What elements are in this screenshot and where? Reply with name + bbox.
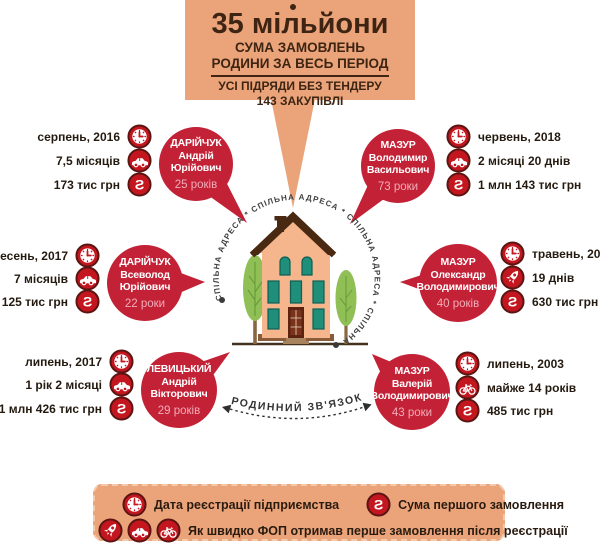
stat-speed: майже 14 років xyxy=(455,375,576,400)
person-surname: МАЗУР xyxy=(440,256,475,269)
stat-first-order-sum: 485 тис грн xyxy=(455,398,553,423)
person-age: 25 років xyxy=(175,179,217,191)
money-icon xyxy=(127,172,152,197)
person-age: 29 років xyxy=(158,405,200,417)
subtitle-line1: СУМА ЗАМОВЛЕНЬ xyxy=(185,40,415,56)
legend: Дата реєстрації підприємства Сума першог… xyxy=(93,484,505,541)
clock-icon xyxy=(75,243,100,268)
person-name: Андрій xyxy=(178,150,213,163)
person-age: 40 років xyxy=(437,298,479,310)
person-patronymic: Володимирович xyxy=(416,281,499,294)
legend-item-registration: Дата реєстрації підприємства Сума першог… xyxy=(122,492,564,517)
person-patronymic: Васильович xyxy=(367,164,429,177)
person-bubble: ДАРІЙЧУК Андрій Юрійович 25 років xyxy=(159,127,233,201)
clock-icon xyxy=(446,124,471,149)
stat-speed: 7 місяців xyxy=(0,266,100,291)
stat-value: липень, 2003 xyxy=(487,357,564,371)
stat-first-order-sum: 1 млн 143 тис грн xyxy=(446,172,581,197)
clock-icon xyxy=(455,351,480,376)
person-bubble: ЛЕВИЦЬКИЙ Андрій Вікторович 29 років xyxy=(141,352,217,428)
person-patronymic: Володимирович xyxy=(370,390,453,403)
bicycle-icon xyxy=(455,375,480,400)
money-icon xyxy=(446,172,471,197)
rocket-icon xyxy=(98,518,123,543)
callout-pointer xyxy=(271,99,315,208)
stat-value: 173 тис грн xyxy=(54,178,120,192)
note-line1: УСІ ПІДРЯДИ БЕЗ ТЕНДЕРУ xyxy=(185,79,415,94)
stat-speed: 1 рік 2 місяці xyxy=(0,372,134,397)
person-patronymic: Юрійович xyxy=(171,162,221,175)
stat-registration-date: липень, 2003 xyxy=(455,351,564,376)
person-surname: ЛЕВИЦЬКИЙ xyxy=(147,363,211,376)
person-name: Олександр xyxy=(431,269,486,282)
stat-value: травень, 2018 xyxy=(532,247,600,261)
person-bubble: МАЗУР Олександр Володимирович 40 років xyxy=(419,244,497,322)
page-title: 35 мільйони xyxy=(185,0,415,39)
bicycle-icon xyxy=(156,518,181,543)
header-divider xyxy=(211,75,389,77)
middle-windows xyxy=(268,281,324,303)
stat-registration-date: червень, 2018 xyxy=(446,124,561,149)
legend-label: Як швидко ФОП отримав перше замовлення п… xyxy=(188,524,568,538)
stat-value: 630 тис грн xyxy=(532,295,598,309)
stat-registration-date: липень, 2017 xyxy=(0,349,134,374)
stat-value: 2 місяці 20 днів xyxy=(478,154,570,168)
person-patronymic: Вікторович xyxy=(150,388,207,401)
legend-label: Сума першого замовлення xyxy=(398,498,564,512)
stat-value: вересень, 2017 xyxy=(0,249,68,263)
money-icon xyxy=(109,396,134,421)
stat-first-order-sum: 1 млн 426 тис грн xyxy=(0,396,134,421)
stat-value: 7 місяців xyxy=(14,272,68,286)
person-surname: ДАРІЙЧУК xyxy=(119,256,170,269)
stat-value: 1 млн 426 тис грн xyxy=(0,402,102,416)
person-bubble: МАЗУР Володимир Васильович 73 роки xyxy=(361,129,435,203)
stat-first-order-sum: 125 тис грн xyxy=(0,289,100,314)
legend-item-speed: Як швидко ФОП отримав перше замовлення п… xyxy=(98,518,568,543)
person-surname: МАЗУР xyxy=(394,365,429,378)
stat-registration-date: травень, 2018 xyxy=(500,241,600,266)
person-name: Всеволод xyxy=(120,269,170,282)
stat-value: 7,5 місяців xyxy=(56,154,120,168)
person-patronymic: Юрійович xyxy=(120,281,170,294)
stat-speed: 19 днів xyxy=(500,265,574,290)
stat-value: липень, 2017 xyxy=(25,355,102,369)
stat-first-order-sum: 630 тис грн xyxy=(500,289,598,314)
rocket-icon xyxy=(500,265,525,290)
person-surname: МАЗУР xyxy=(380,139,415,152)
arrowhead-left xyxy=(222,405,231,414)
stat-speed: 7,5 місяців xyxy=(0,148,152,173)
person-age: 43 роки xyxy=(392,407,432,419)
stat-value: 1 рік 2 місяці xyxy=(25,378,102,392)
clock-icon xyxy=(122,492,147,517)
house-illustration xyxy=(232,215,368,344)
stat-first-order-sum: 173 тис грн xyxy=(0,172,152,197)
svg-text:РОДИННИЙ ЗВ'ЯЗОК: РОДИННИЙ ЗВ'ЯЗОК xyxy=(230,391,364,414)
note-line2: 143 ЗАКУПІВЛІ xyxy=(185,94,415,109)
person-surname: ДАРІЙЧУК xyxy=(170,137,221,150)
stat-value: майже 14 років xyxy=(487,381,576,395)
title-dot xyxy=(290,4,296,10)
money-icon xyxy=(500,289,525,314)
person-name: Андрій xyxy=(161,376,196,389)
person-bubble: ДАРІЙЧУК Всеволод Юрійович 22 роки xyxy=(107,245,183,321)
person-age: 73 роки xyxy=(378,181,418,193)
clock-icon xyxy=(127,124,152,149)
car-icon xyxy=(75,266,100,291)
stat-value: серпень, 2016 xyxy=(37,130,120,144)
car-icon xyxy=(109,372,134,397)
arrowhead-right xyxy=(363,403,372,412)
stat-value: 19 днів xyxy=(532,271,574,285)
person-age: 22 роки xyxy=(125,298,165,310)
money-icon xyxy=(366,492,391,517)
stat-value: 1 млн 143 тис грн xyxy=(478,178,581,192)
money-icon xyxy=(75,289,100,314)
stat-registration-date: вересень, 2017 xyxy=(0,243,100,268)
header-note: УСІ ПІДРЯДИ БЕЗ ТЕНДЕРУ 143 ЗАКУПІВЛІ xyxy=(185,79,415,109)
subtitle-line2: РОДИНИ ЗА ВЕСЬ ПЕРІОД xyxy=(185,56,415,72)
stat-value: 485 тис грн xyxy=(487,404,553,418)
stat-value: червень, 2018 xyxy=(478,130,561,144)
person-name: Володимир xyxy=(369,152,428,165)
header-callout: 35 мільйони СУМА ЗАМОВЛЕНЬ РОДИНИ ЗА ВЕС… xyxy=(185,0,415,100)
stat-registration-date: серпень, 2016 xyxy=(0,124,152,149)
car-icon xyxy=(127,148,152,173)
stat-value: 125 тис грн xyxy=(2,295,68,309)
money-icon xyxy=(455,398,480,423)
clock-icon xyxy=(500,241,525,266)
stat-speed: 2 місяці 20 днів xyxy=(446,148,570,173)
family-link-text: РОДИННИЙ ЗВ'ЯЗОК xyxy=(230,391,364,414)
person-bubble: МАЗУР Валерій Володимирович 43 роки xyxy=(374,354,450,430)
legend-label: Дата реєстрації підприємства xyxy=(154,498,339,512)
infographic: S xyxy=(0,0,600,547)
car-icon xyxy=(446,148,471,173)
person-name: Валерій xyxy=(392,378,432,391)
car-icon xyxy=(127,518,152,543)
clock-icon xyxy=(109,349,134,374)
header-subtitle: СУМА ЗАМОВЛЕНЬ РОДИНИ ЗА ВЕСЬ ПЕРІОД xyxy=(185,40,415,72)
family-link: РОДИННИЙ ЗВ'ЯЗОК xyxy=(222,391,372,418)
